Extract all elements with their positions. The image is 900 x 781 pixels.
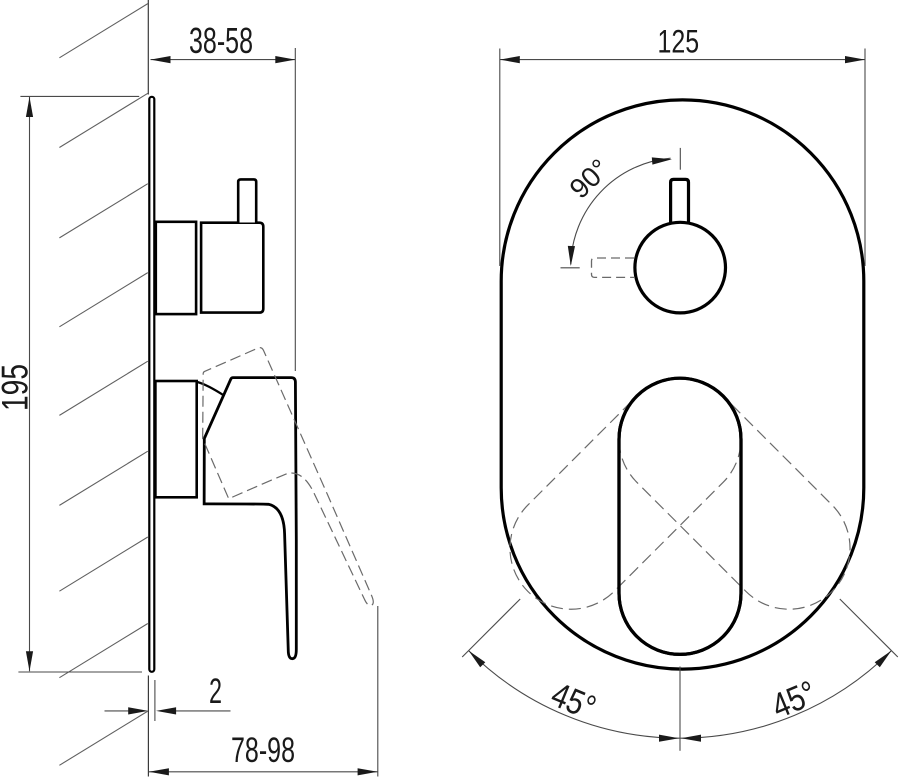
svg-text:2: 2 (209, 672, 222, 711)
svg-text:38-58: 38-58 (189, 20, 253, 61)
svg-text:195: 195 (0, 364, 36, 411)
svg-text:78-98: 78-98 (231, 731, 295, 770)
svg-text:125: 125 (658, 23, 700, 59)
